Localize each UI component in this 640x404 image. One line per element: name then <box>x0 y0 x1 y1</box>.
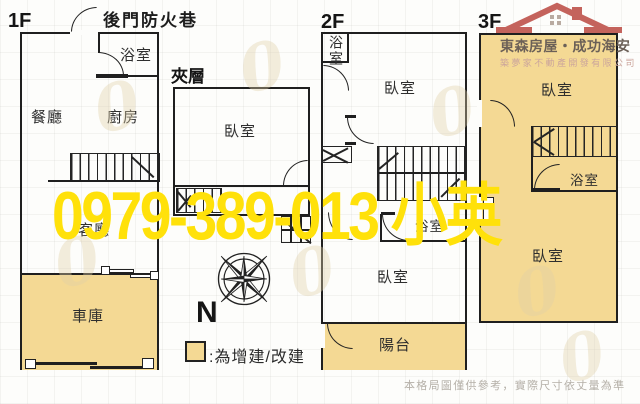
room-label-dining: 餐廳 <box>31 106 63 127</box>
staircase-3f <box>531 126 618 157</box>
disclaimer-text: 本格局圖僅供參考，實際尺寸依丈量為準 <box>404 377 625 393</box>
room-label-garage: 車庫 <box>72 305 104 326</box>
wall <box>345 142 356 145</box>
room-label-balcony: 陽台 <box>379 334 411 355</box>
phone-watermark: 0979-389-013 小英 <box>52 160 500 259</box>
sliding-door-cap <box>150 271 159 280</box>
wall <box>531 126 533 192</box>
roof-logo-icon <box>494 2 624 34</box>
wall <box>98 32 100 53</box>
room-label-bedroom-3f-top: 臥室 <box>541 79 573 100</box>
floorplan-canvas: 1F 後門防火巷 浴室 餐廳 廚房 客廳 車庫 夾層 臥室 <box>0 0 640 404</box>
room-label-bedroom-2f-top: 臥室 <box>384 77 416 98</box>
room-label-bedroom-mezz: 臥室 <box>224 120 256 141</box>
wall <box>347 32 349 63</box>
floor-label-mezzanine: 夾層 <box>171 62 205 87</box>
north-label: N <box>196 296 218 330</box>
room-label-bedroom-2f-bottom: 臥室 <box>377 266 409 287</box>
legend-swatch <box>185 341 206 362</box>
floor-label-1f: 1F <box>8 10 31 33</box>
room-label-bath-1f: 浴室 <box>120 44 152 65</box>
gate-bar <box>90 366 146 369</box>
back-alley-label: 後門防火巷 <box>103 6 198 31</box>
room-label-bath-3f: 浴室 <box>570 169 599 189</box>
legend-label: :為增建/改建 <box>209 343 305 367</box>
door-opening <box>321 324 325 348</box>
gate-cap <box>142 358 154 369</box>
door-swing-icon <box>71 7 97 32</box>
wall <box>533 188 560 191</box>
gate-bar <box>35 362 97 365</box>
brand-subtitle: 築夢家不動產開發有限公司 <box>500 56 637 69</box>
sliding-door-bar <box>109 269 134 273</box>
brand-title: 東森房屋・成功海安 <box>500 36 631 56</box>
floor-label-2f: 2F <box>321 11 344 34</box>
